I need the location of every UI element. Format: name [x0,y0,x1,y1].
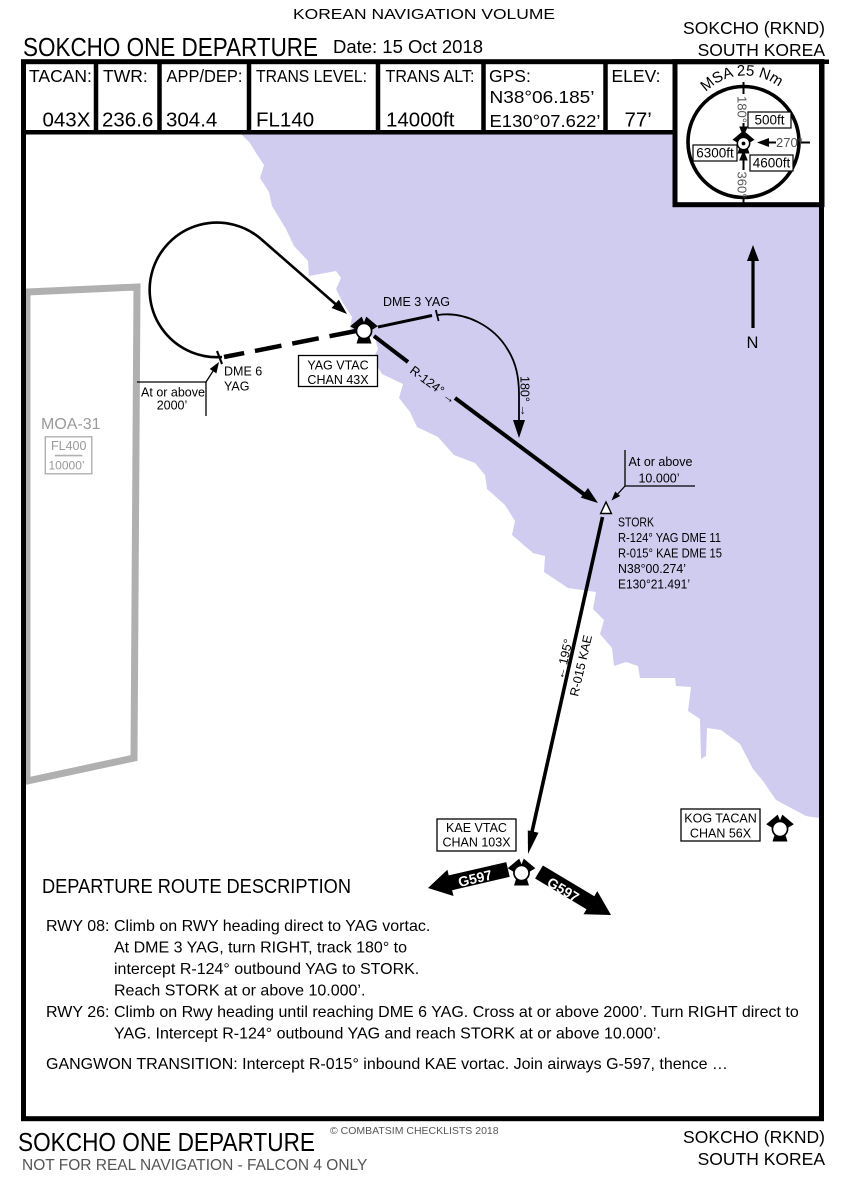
svg-text:FL400: FL400 [51,439,86,453]
svg-text:R-124° YAG DME 11: R-124° YAG DME 11 [618,531,721,545]
svg-text:MOA-31: MOA-31 [41,416,101,433]
svg-text:DME 6: DME 6 [224,365,262,379]
svg-text:At or above: At or above [629,455,693,469]
svg-text:Date: 15 Oct 2018: Date: 15 Oct 2018 [333,37,483,57]
svg-text:NOT FOR REAL NAVIGATION - FALC: NOT FOR REAL NAVIGATION - FALCON 4 ONLY [22,1157,367,1174]
svg-text:RWY 26:: RWY 26: [46,1004,109,1021]
svg-text:4600ft: 4600ft [753,156,791,171]
svg-text:236.6: 236.6 [102,109,153,132]
svg-text:Reach STORK at or above 10.000: Reach STORK at or above 10.000’. [114,983,365,1000]
svg-text:GANGWON TRANSITION: Intercept: GANGWON TRANSITION: Intercept R-015° inb… [46,1056,728,1073]
svg-text:FL140: FL140 [256,109,314,132]
svg-text:180°: 180° [735,96,750,123]
svg-text:CHAN 56X: CHAN 56X [690,827,752,841]
svg-text:GPS:: GPS: [489,66,531,86]
svg-text:270°: 270° [776,135,803,150]
svg-text:KOREAN NAVIGATION VOLUME: KOREAN NAVIGATION VOLUME [293,6,555,23]
svg-text:TRANS LEVEL:: TRANS LEVEL: [256,66,367,86]
svg-text:YAG VTAC: YAG VTAC [307,359,368,373]
svg-text:© COMBATSIM CHECKLISTS 2018: © COMBATSIM CHECKLISTS 2018 [330,1125,499,1137]
svg-text:TACAN:: TACAN: [29,66,92,86]
svg-text:N38°06.185’: N38°06.185’ [490,87,595,107]
svg-text:10.000’: 10.000’ [638,472,679,486]
svg-text:SOKCHO (RKND): SOKCHO (RKND) [683,18,825,38]
svg-text:YAG. Intercept R-124° outbound: YAG. Intercept R-124° outbound YAG and r… [114,1026,661,1043]
svg-text:2000’: 2000’ [157,399,188,413]
svg-text:SOKCHO ONE DEPARTURE: SOKCHO ONE DEPARTURE [23,32,318,62]
svg-text:E130°21.491’: E130°21.491’ [618,578,690,592]
svg-text:SOUTH KOREA: SOUTH KOREA [698,1149,826,1169]
svg-text:E130°07.622’: E130°07.622’ [490,111,601,131]
svg-text:TRANS ALT:: TRANS ALT: [386,66,475,86]
svg-text:043X: 043X [43,109,91,132]
svg-text:SOKCHO (RKND): SOKCHO (RKND) [683,1127,825,1147]
svg-text:304.4: 304.4 [166,109,217,132]
svg-text:CHAN 43X: CHAN 43X [307,373,369,387]
svg-text:77’: 77’ [625,109,652,132]
svg-text:SOKCHO ONE DEPARTURE: SOKCHO ONE DEPARTURE [18,1127,315,1157]
svg-text:At or above: At or above [141,386,205,400]
svg-text:180° →: 180° → [518,376,532,417]
svg-text:6300ft: 6300ft [696,146,734,161]
svg-text:CHAN 103X: CHAN 103X [442,836,511,850]
svg-text:KAE VTAC: KAE VTAC [446,821,507,835]
svg-text:Climb on Rwy heading until rea: Climb on Rwy heading until reaching DME … [114,1004,799,1021]
svg-text:YAG: YAG [224,380,249,394]
svg-text:R-015° KAE DME 15: R-015° KAE DME 15 [618,547,722,561]
svg-text:14000ft: 14000ft [386,109,455,132]
svg-text:N38°00.274’: N38°00.274’ [618,562,686,576]
svg-text:ELEV:: ELEV: [612,66,661,86]
svg-text:N: N [747,334,759,352]
svg-text:Climb on RWY heading direct to: Climb on RWY heading direct to YAG vorta… [114,918,430,935]
svg-text:STORK: STORK [618,516,655,530]
svg-text:RWY 08:: RWY 08: [46,918,109,935]
svg-text:At DME 3 YAG, turn RIGHT, trac: At DME 3 YAG, turn RIGHT, track 180° to [114,940,407,957]
svg-text:10000’: 10000’ [49,459,85,473]
svg-text:SOUTH KOREA: SOUTH KOREA [698,40,826,60]
svg-text:360°: 360° [735,172,750,199]
svg-text:KOG TACAN: KOG TACAN [684,812,756,826]
svg-text:500ft: 500ft [754,113,784,128]
svg-text:intercept R-124° outbound YAG: intercept R-124° outbound YAG to STORK. [114,961,419,978]
svg-text:APP/DEP:: APP/DEP: [167,66,243,86]
svg-text:DEPARTURE ROUTE DESCRIPTION: DEPARTURE ROUTE DESCRIPTION [42,876,351,898]
svg-text:DME 3 YAG: DME 3 YAG [383,295,450,309]
svg-text:TWR:: TWR: [103,66,148,86]
